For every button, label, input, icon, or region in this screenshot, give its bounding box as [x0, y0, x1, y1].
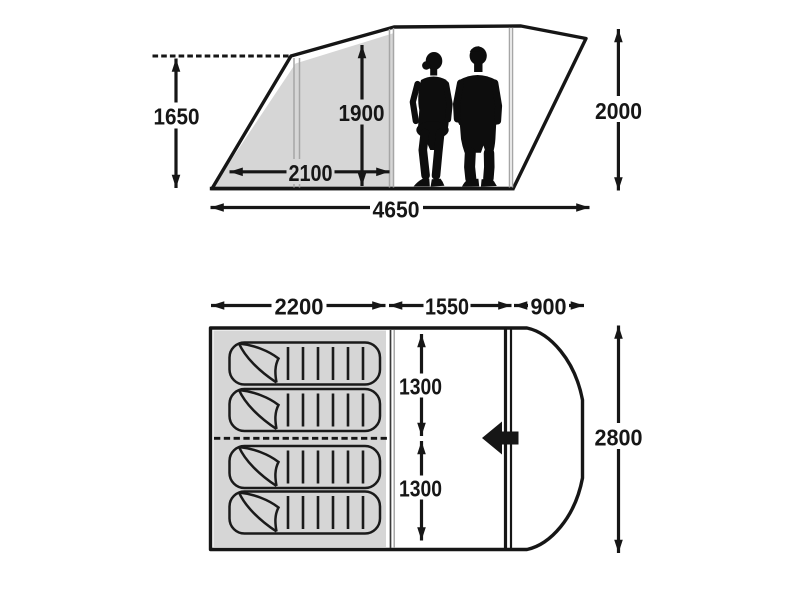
svg-text:2200: 2200	[275, 294, 324, 320]
svg-text:900: 900	[531, 294, 567, 320]
svg-text:1550: 1550	[425, 294, 469, 320]
svg-text:1650: 1650	[154, 103, 200, 129]
svg-text:2000: 2000	[595, 98, 642, 124]
svg-text:2800: 2800	[595, 425, 643, 451]
svg-text:1900: 1900	[339, 100, 385, 126]
svg-text:2100: 2100	[289, 160, 333, 186]
svg-text:4650: 4650	[373, 197, 420, 223]
svg-text:1300: 1300	[399, 476, 442, 502]
svg-text:1300: 1300	[399, 374, 442, 400]
